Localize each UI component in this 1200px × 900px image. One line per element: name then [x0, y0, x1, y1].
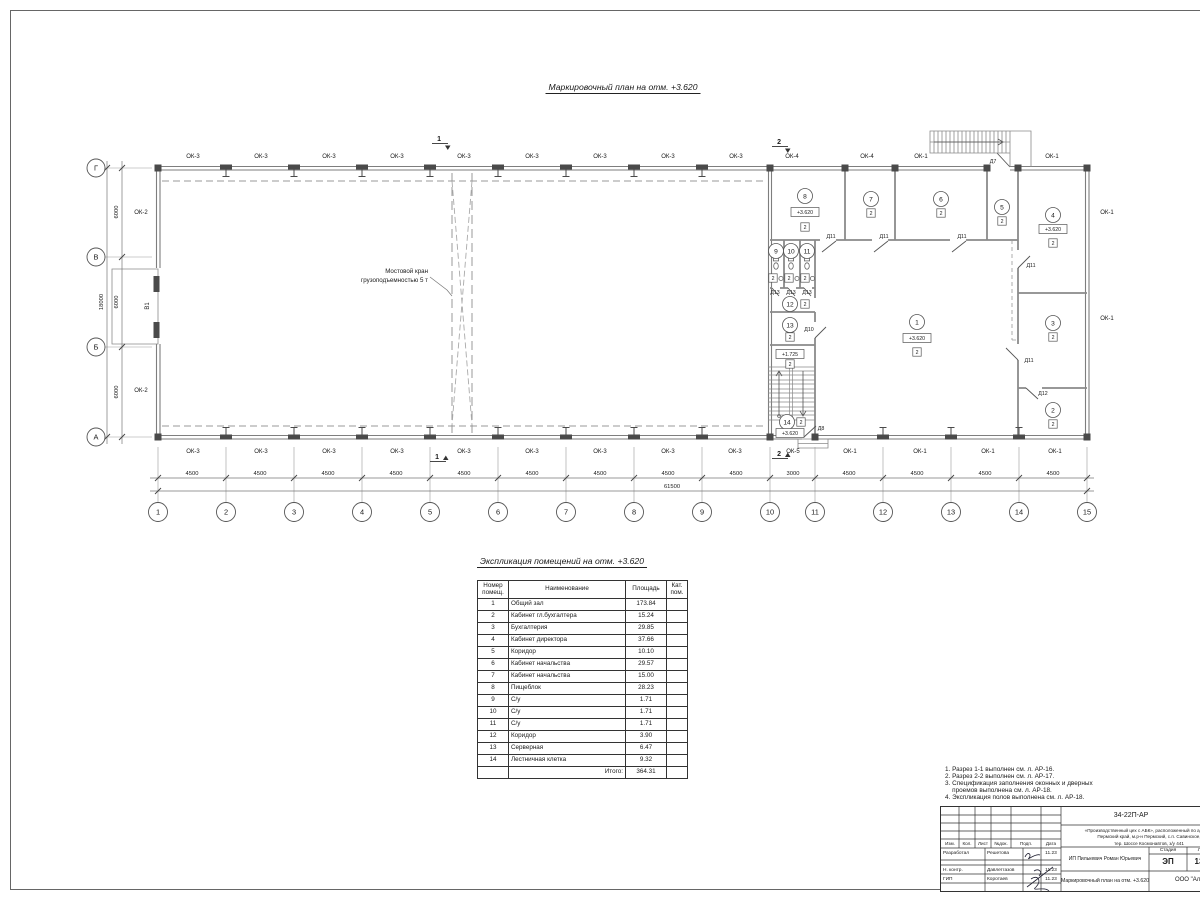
room-area-cell: 15.00 — [626, 671, 667, 683]
svg-text:2: 2 — [1051, 407, 1055, 414]
bottom-dimensions: 4500450045004500450045004500450045003000… — [186, 471, 1060, 477]
total-dimension-left: 18000 — [99, 294, 105, 310]
grid-bubble: 12 — [874, 503, 893, 522]
window-label: ОК-3 — [661, 449, 675, 455]
dimension-value: 4500 — [843, 471, 856, 477]
room-category-cell — [667, 707, 688, 719]
room-area-cell: 173.84 — [626, 599, 667, 611]
room-category-cell — [667, 599, 688, 611]
svg-text:11: 11 — [811, 508, 819, 517]
note-line: 1. Разрез 1-1 выполнен см. л. АР-16. — [945, 766, 1093, 773]
svg-text:12: 12 — [786, 301, 794, 308]
window-label: ОК-1 — [914, 154, 928, 160]
door-label: Д10 — [804, 327, 814, 333]
svg-text:10: 10 — [787, 248, 795, 255]
svg-text:Б: Б — [94, 343, 99, 352]
floor-type-marker: 2 — [1049, 239, 1057, 247]
room-number-marker: 8 — [798, 189, 813, 204]
door-label: Д11 — [957, 234, 966, 240]
grid-bubble: А — [87, 428, 105, 446]
dimension-value: 4500 — [730, 471, 743, 477]
window-label: ОК-3 — [593, 449, 607, 455]
room-number-cell: 6 — [478, 659, 509, 671]
room-category-cell — [667, 671, 688, 683]
room-number-cell: 3 — [478, 623, 509, 635]
svg-text:2: 2 — [804, 302, 807, 308]
room-area-cell: 28.23 — [626, 683, 667, 695]
note-line: 2. Разрез 2-2 выполнен см. л. АР-17. — [945, 773, 1093, 780]
svg-text:4: 4 — [1051, 212, 1055, 219]
room-number-cell: 9 — [478, 695, 509, 707]
signature-date: 11.23 — [1041, 851, 1061, 856]
svg-text:+3.620: +3.620 — [1045, 227, 1061, 233]
document-code: 34-22П-АР — [1114, 812, 1149, 819]
room-name-cell: Кабинет директора — [509, 635, 626, 647]
total-value: 364.31 — [626, 767, 667, 779]
revision-header-label: Подп. — [1020, 841, 1032, 846]
window-label: ОК-3 — [525, 449, 539, 455]
svg-text:1: 1 — [435, 454, 439, 461]
crane-label-leader — [430, 277, 452, 296]
signer-role: ГИП — [943, 877, 953, 882]
door-label: Д11 — [879, 234, 888, 240]
revision-header-label: №док. — [994, 841, 1007, 846]
table-row: 2 Кабинет гл.бухгалтера 15.24 — [478, 611, 688, 623]
svg-text:2: 2 — [788, 276, 791, 282]
signer-name: Давлетгазов — [987, 868, 1014, 873]
grid-bubble: 15 — [1078, 503, 1097, 522]
floor-type-marker: 2 — [867, 209, 875, 217]
drawing-sheet: Маркировочный план на отм. +3.620 Мостов… — [0, 0, 1200, 900]
svg-text:А: А — [94, 433, 99, 442]
elevation-marker: +3.620 — [903, 334, 931, 343]
room-number-cell: 5 — [478, 647, 509, 659]
revision-header-label: Изм. — [945, 841, 955, 846]
table-body: 1 Общий зал 173.84 2 Кабинет гл.бухгалте… — [478, 599, 688, 767]
room-number-marker: 13 — [783, 318, 798, 333]
note-line: 4. Экспликация полов выполнена см. л. АР… — [945, 794, 1093, 801]
svg-text:2: 2 — [777, 451, 781, 458]
window-label: ОК-3 — [390, 449, 404, 455]
room-name-cell: Кабинет начальства — [509, 671, 626, 683]
svg-text:2: 2 — [772, 276, 775, 282]
grid-bubble: 2 — [217, 503, 236, 522]
svg-text:Г: Г — [94, 164, 98, 173]
room-number-cell: 11 — [478, 719, 509, 731]
door-label: Д12 — [1038, 391, 1048, 397]
svg-text:2: 2 — [789, 335, 792, 341]
svg-text:11: 11 — [804, 248, 811, 255]
svg-text:+3.620: +3.620 — [782, 431, 798, 437]
wall-junction-posts — [155, 165, 1091, 441]
room-number-cell: 13 — [478, 743, 509, 755]
room-number-marker: 7 — [864, 192, 879, 207]
table-total-row: Итого: 364.31 — [478, 767, 688, 779]
table-row: 6 Кабинет начальства 29.57 — [478, 659, 688, 671]
room-number-cell: 4 — [478, 635, 509, 647]
grid-bubble: 13 — [942, 503, 961, 522]
table-row: 8 Пищеблок 28.23 — [478, 683, 688, 695]
door-label: Д13 — [802, 290, 812, 296]
elevation-marker: +3.620 — [791, 208, 819, 217]
room-area-cell: 1.71 — [626, 695, 667, 707]
door-label: Д13 — [770, 290, 780, 296]
door-labels: Д11Д11Д11Д11Д11Д12Д13Д13Д13Д10Д8Д7 — [770, 159, 1048, 432]
entrance-stair — [930, 131, 1031, 167]
left-dimension-3: 6000 — [114, 386, 120, 399]
window-label: ОК-4 — [860, 154, 874, 160]
room-category-cell — [667, 683, 688, 695]
grid-bubble: В — [87, 248, 105, 266]
table-title: Экспликация помещений на отм. +3.620 — [477, 556, 647, 568]
svg-text:2: 2 — [1001, 219, 1004, 225]
left-dimension-2: 6000 — [114, 296, 120, 309]
entrance-stair-arrow — [934, 139, 1003, 145]
left-dimension-1: 6000 — [114, 206, 120, 219]
table-row: 13 Серверная 6.47 — [478, 743, 688, 755]
crane-bridge-cross — [452, 181, 472, 425]
svg-text:14: 14 — [1015, 508, 1023, 517]
exterior-walls — [155, 167, 1090, 440]
room-category-cell — [667, 647, 688, 659]
grid-bubble: 3 — [285, 503, 304, 522]
dimension-value: 4500 — [911, 471, 924, 477]
room-name-cell: Коридор — [509, 731, 626, 743]
table-row: 1 Общий зал 173.84 — [478, 599, 688, 611]
room-number-marker: 14 — [780, 415, 795, 430]
room-name-cell: Коридор — [509, 647, 626, 659]
signature-row: Разработал Решетова 11.23 — [941, 851, 1061, 861]
grid-bubble: 1 — [149, 503, 168, 522]
room-number-cell: 1 — [478, 599, 509, 611]
room-number-cell: 10 — [478, 707, 509, 719]
dimension-value: 4500 — [526, 471, 539, 477]
window-label: ОК-3 — [593, 154, 607, 160]
project-address-line2: Пермский край, м.р-н Пермский, с.п. Сави… — [1097, 834, 1200, 839]
room-category-cell — [667, 659, 688, 671]
room-number-marker: 9 — [769, 244, 784, 259]
window-label: ОК-3 — [525, 154, 539, 160]
revision-header-label: Дата — [1046, 841, 1056, 846]
room-name-cell: Кабинет начальства — [509, 659, 626, 671]
room-category-cell — [667, 611, 688, 623]
svg-text:2: 2 — [870, 211, 873, 217]
grid-bubble: 11 — [806, 503, 825, 522]
header-room-number: Номерпомещ. — [478, 581, 509, 599]
section-mark: 1 — [430, 454, 449, 462]
window-label: ОК-2 — [134, 210, 148, 216]
svg-text:9: 9 — [700, 508, 704, 517]
svg-text:2: 2 — [224, 508, 228, 517]
dimension-value: 4500 — [1047, 471, 1060, 477]
window-label: ОК-3 — [661, 154, 675, 160]
room-name-cell: Серверная — [509, 743, 626, 755]
notes: 1. Разрез 1-1 выполнен см. л. АР-16.2. Р… — [945, 766, 1093, 801]
window-label: ОК-3 — [254, 154, 268, 160]
dimension-value: 4500 — [662, 471, 675, 477]
signer-role: Разработал — [943, 851, 969, 856]
room-number-marker: 3 — [1046, 316, 1061, 331]
window-label: ОК-1 — [913, 449, 927, 455]
column-stems-bottom — [223, 428, 1023, 435]
room-area-cell: 29.85 — [626, 623, 667, 635]
header-room-area: Площадь — [626, 581, 667, 599]
room-area-cell: 9.32 — [626, 755, 667, 767]
svg-text:13: 13 — [947, 508, 955, 517]
door-label: Д11 — [1026, 263, 1035, 269]
svg-text:3: 3 — [1051, 320, 1055, 327]
grid-bubble: 10 — [761, 503, 780, 522]
svg-text:14: 14 — [783, 419, 791, 426]
floor-type-marker: 2 — [913, 348, 921, 356]
signature-date: 11.23 — [1041, 868, 1061, 873]
floor-type-marker: 2 — [937, 209, 945, 217]
table-row: 4 Кабинет директора 37.66 — [478, 635, 688, 647]
room-number-marker: 2 — [1046, 403, 1061, 418]
grid-bubble: 7 — [557, 503, 576, 522]
svg-text:8: 8 — [632, 508, 636, 517]
total-dimension-bottom: 61500 — [664, 484, 680, 490]
gate-leaves — [154, 276, 160, 338]
svg-text:7: 7 — [564, 508, 568, 517]
window-label: ОК-3 — [254, 449, 268, 455]
room-name-cell: С/у — [509, 707, 626, 719]
room-category-cell — [667, 719, 688, 731]
window-label: ОК-1 — [1045, 154, 1059, 160]
table-row: 3 Бухгалтерия 29.85 — [478, 623, 688, 635]
total-label: Итого: — [509, 767, 626, 779]
svg-text:2: 2 — [940, 211, 943, 217]
svg-text:5: 5 — [428, 508, 432, 517]
dimension-value: 4500 — [254, 471, 267, 477]
dimension-value: 4500 — [458, 471, 471, 477]
window-label: ОК-1 — [843, 449, 857, 455]
room-number-cell: 8 — [478, 683, 509, 695]
dimension-value: 4500 — [322, 471, 335, 477]
svg-text:9: 9 — [774, 248, 778, 255]
table-row: 9 С/у 1.71 — [478, 695, 688, 707]
svg-text:1: 1 — [156, 508, 160, 517]
dimension-value: 4500 — [979, 471, 992, 477]
floor-type-marker: 2 — [801, 274, 809, 282]
svg-text:+1.725: +1.725 — [782, 352, 798, 358]
section-marks-top: 1 2 — [432, 136, 791, 153]
window-label: ОК-1 — [1048, 449, 1062, 455]
room-area-cell: 6.47 — [626, 743, 667, 755]
window-label: ОК-3 — [728, 449, 742, 455]
svg-text:15: 15 — [1083, 508, 1091, 517]
room-number-cell: 2 — [478, 611, 509, 623]
svg-text:6: 6 — [496, 508, 500, 517]
svg-text:10: 10 — [766, 508, 774, 517]
window-label: ОК-3 — [186, 449, 200, 455]
door-label: Д11 — [1024, 358, 1033, 364]
title-block: 34-22П-АР «Производственный цех с АБК», … — [940, 806, 1200, 892]
room-category-cell — [667, 731, 688, 743]
gate-label: В1 — [145, 302, 151, 310]
grid-bubble: 14 — [1010, 503, 1029, 522]
svg-text:1: 1 — [437, 136, 441, 143]
svg-text:7: 7 — [869, 196, 873, 203]
grid-bubble: Г — [87, 159, 105, 177]
signer-role: Н. контр. — [943, 868, 963, 873]
floor-type-marker: 2 — [1049, 420, 1057, 428]
project-address-line1: «Производственный цех с АБК», расположен… — [1085, 828, 1200, 833]
room-area-cell: 1.71 — [626, 719, 667, 731]
door-label: Д7 — [990, 159, 997, 165]
svg-text:6: 6 — [939, 196, 943, 203]
window-label: ОК-3 — [322, 449, 336, 455]
project-address-line3: тер. Шоссе Космонавтов, з/у 441 — [1114, 841, 1184, 846]
stage-header: Стадия — [1160, 848, 1176, 853]
svg-text:2: 2 — [1052, 335, 1055, 341]
window-label: ОК-1 — [1100, 210, 1114, 216]
crane-rails — [162, 181, 766, 426]
door-label: Д13 — [786, 290, 796, 296]
table-row: 7 Кабинет начальства 15.00 — [478, 671, 688, 683]
room-number-cell: 14 — [478, 755, 509, 767]
crane-label-line2: грузоподъемностью 5 т — [361, 277, 428, 284]
dimension-value: 3000 — [787, 471, 800, 477]
table-header-row: Номерпомещ. Наименование Площадь Кат.пом… — [478, 581, 688, 599]
svg-text:2: 2 — [804, 225, 807, 231]
svg-text:+3.620: +3.620 — [797, 210, 813, 216]
window-label: ОК-3 — [729, 154, 743, 160]
grid-bubble: 6 — [489, 503, 508, 522]
floor-type-marker: 2 — [801, 223, 809, 231]
section-mark: 2 — [772, 139, 791, 153]
signer-name: Решетова — [987, 851, 1009, 856]
drawing-name: Маркировочный план на отм. +3.620 — [1061, 878, 1149, 884]
room-name-cell: С/у — [509, 695, 626, 707]
grid-bubble: 5 — [421, 503, 440, 522]
note-line: проемов выполнена см. л. АР-18. — [945, 787, 1093, 794]
room-number-marker: 11 — [800, 244, 815, 259]
crane-label-line1: Мостовой кран — [385, 268, 428, 275]
room-number-marker: 5 — [995, 200, 1010, 215]
svg-text:3: 3 — [292, 508, 296, 517]
grid-bubble: Б — [87, 338, 105, 356]
floor-type-marker: 2 — [769, 274, 777, 282]
client-name: ИП Пилькевич Роман Юрьевич — [1069, 856, 1142, 862]
room-number-marker: 4 — [1046, 208, 1061, 223]
svg-text:2: 2 — [916, 350, 919, 356]
floor-type-marker: 2 — [785, 274, 793, 282]
note-line: 3. Спецификация заполнения оконных и две… — [945, 780, 1093, 787]
stair-arrows — [776, 371, 806, 416]
room-area-cell: 15.24 — [626, 611, 667, 623]
svg-text:1: 1 — [915, 319, 919, 326]
svg-text:В: В — [94, 253, 99, 262]
svg-text:2: 2 — [777, 139, 781, 146]
elevation-marker: +3.620 — [1039, 225, 1067, 234]
svg-text:13: 13 — [786, 322, 794, 329]
room-name-cell: Пищеблок — [509, 683, 626, 695]
room-area-cell: 3.90 — [626, 731, 667, 743]
window-label: ОК-3 — [390, 154, 404, 160]
organization-name: ООО "Альянс" — [1175, 877, 1200, 883]
table-row: 5 Коридор 10.10 — [478, 647, 688, 659]
elevation-marker: +3.620 — [776, 429, 804, 438]
dimension-value: 4500 — [594, 471, 607, 477]
room-number-marker: 10 — [784, 244, 799, 259]
room-number-marker: 12 — [783, 297, 798, 312]
elevation-marker: +1.725 — [776, 350, 804, 359]
svg-text:2: 2 — [1052, 241, 1055, 247]
signature-date: 11.23 — [1041, 877, 1061, 882]
room-name-cell: С/у — [509, 719, 626, 731]
room-name-cell: Кабинет гл.бухгалтера — [509, 611, 626, 623]
room-area-cell: 10.10 — [626, 647, 667, 659]
floor-type-marker: 2 — [786, 333, 794, 341]
room-number-marker: 1 — [910, 315, 925, 330]
svg-text:+3.620: +3.620 — [909, 336, 925, 342]
sheet-number: 13 — [1195, 857, 1200, 866]
floor-type-marker: 2 — [998, 217, 1006, 225]
window-label: ОК-3 — [457, 154, 471, 160]
table-row: 14 Лестничная клетка 9.32 — [478, 755, 688, 767]
room-category-cell — [667, 743, 688, 755]
header-room-name: Наименование — [509, 581, 626, 599]
room-name-cell: Бухгалтерия — [509, 623, 626, 635]
svg-text:12: 12 — [879, 508, 887, 517]
svg-text:2: 2 — [1052, 422, 1055, 428]
room-area-cell: 29.57 — [626, 659, 667, 671]
room-category-cell — [667, 635, 688, 647]
floor-type-marker: 2 — [797, 418, 805, 426]
table-row: 11 С/у 1.71 — [478, 719, 688, 731]
svg-text:5: 5 — [1000, 204, 1004, 211]
dimension-value: 4500 — [390, 471, 403, 477]
door-label: Д11 — [826, 234, 835, 240]
column-grid-bubbles: 1 2 3 4 5 6 7 8 9 10 11 12 — [149, 503, 1097, 522]
room-number-marker: 6 — [934, 192, 949, 207]
window-label: ОК-4 — [785, 154, 799, 160]
door-label: Д8 — [818, 426, 825, 432]
revision-header-label: Лист — [978, 841, 988, 846]
svg-text:2: 2 — [804, 276, 807, 282]
table-row: 12 Коридор 3.90 — [478, 731, 688, 743]
window-label: ОК-3 — [322, 154, 336, 160]
room-area-cell: 1.71 — [626, 707, 667, 719]
floor-type-marker: 2 — [1049, 333, 1057, 341]
window-label: ОК-2 — [134, 388, 148, 394]
dimension-lines — [107, 161, 1094, 491]
window-label: ОК-3 — [186, 154, 200, 160]
window-label: ОК-1 — [1100, 316, 1114, 322]
signature-row: ГИП Коротаев 11.23 — [941, 877, 1061, 887]
room-category-cell — [667, 695, 688, 707]
svg-text:2: 2 — [789, 362, 792, 368]
header-room-category: Кат.пом. — [667, 581, 688, 599]
floor-type-marker: 2 — [801, 300, 809, 308]
revision-header-label: Кол. — [962, 841, 971, 846]
stage-value: ЭП — [1162, 857, 1173, 866]
room-area-cell: 37.66 — [626, 635, 667, 647]
floor-type-marker: 2 — [786, 360, 794, 368]
room-name-cell: Общий зал — [509, 599, 626, 611]
room-schedule-table: Номерпомещ. Наименование Площадь Кат.пом… — [477, 580, 688, 779]
table-row: 10 С/у 1.71 — [478, 707, 688, 719]
window-label: ОК-1 — [981, 449, 995, 455]
stair-treads — [768, 367, 815, 420]
grid-bubble: 4 — [353, 503, 372, 522]
room-number-cell: 12 — [478, 731, 509, 743]
window-labels: ОК-3ОК-3ОК-3ОК-3ОК-3ОК-3ОК-3ОК-3ОК-3ОК-4… — [134, 154, 1114, 455]
room-number-cell: 7 — [478, 671, 509, 683]
room-category-cell — [667, 755, 688, 767]
section-mark: 1 — [432, 136, 451, 150]
